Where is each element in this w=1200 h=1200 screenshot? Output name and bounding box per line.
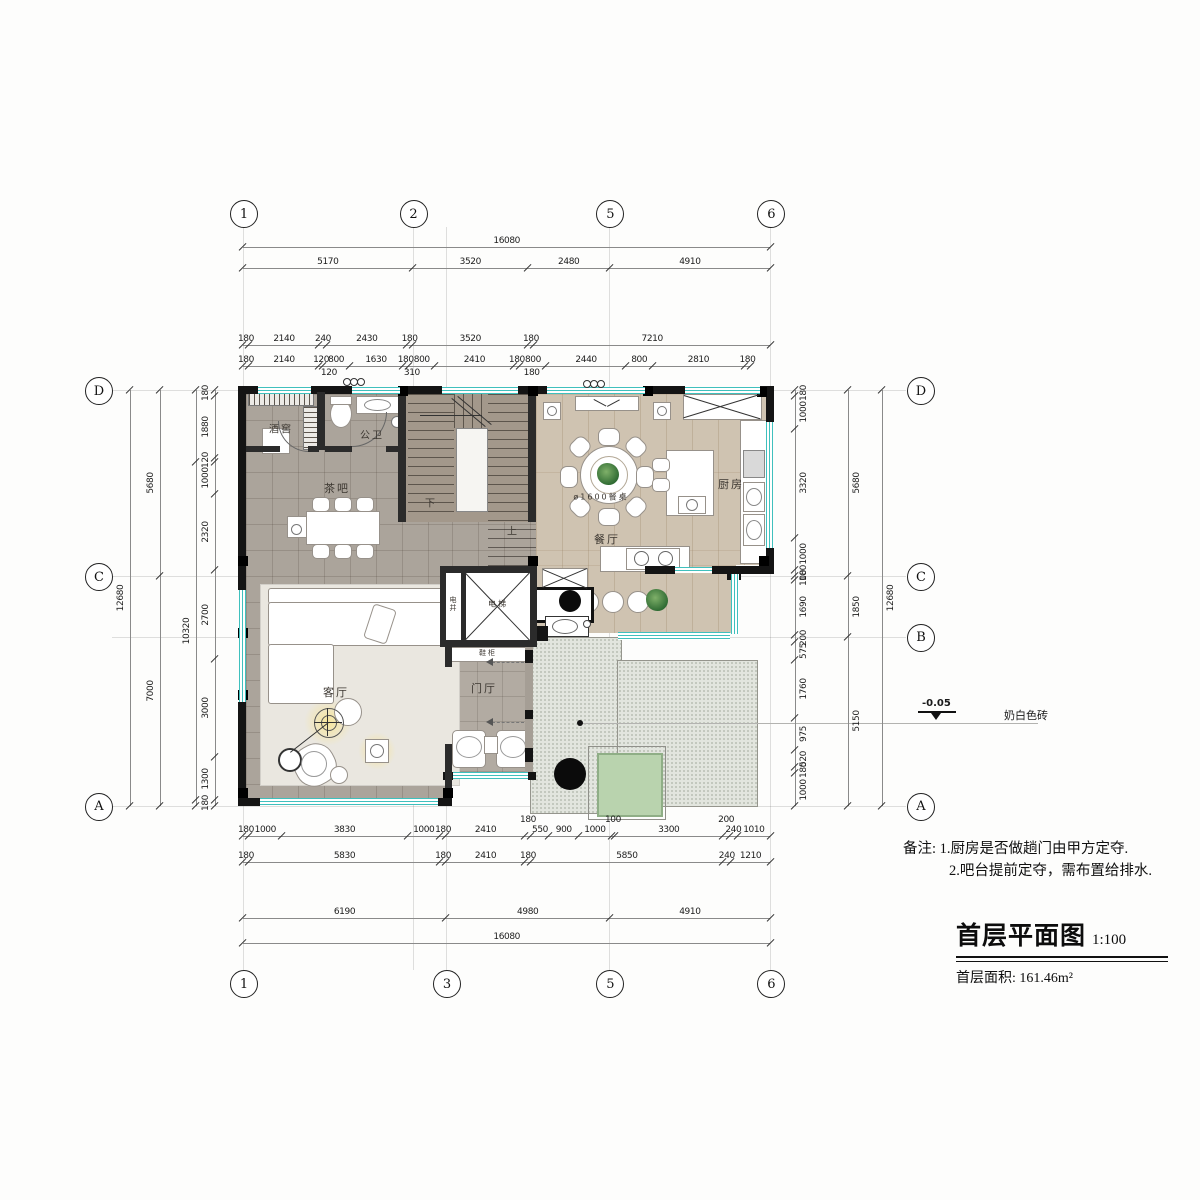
sofa-seat — [268, 602, 452, 646]
window-living-west — [239, 590, 246, 702]
recliner-cushion — [301, 751, 327, 777]
dim-label: 180 — [799, 385, 809, 401]
window — [685, 387, 760, 394]
dim-label: 180 — [488, 815, 568, 825]
wall-light — [547, 406, 557, 416]
dim-label: 180 — [707, 355, 787, 365]
burner — [658, 551, 673, 566]
room-label-stair-up: 上 — [507, 523, 519, 538]
wall-int — [246, 446, 280, 452]
dim-label: 5170 — [288, 257, 368, 267]
terrace-planter — [554, 758, 586, 790]
dim-label: 6190 — [305, 907, 385, 917]
dim-line-left-fine — [215, 390, 216, 806]
title-rule — [956, 956, 1168, 962]
room-label-kitchen: 厨房 — [718, 476, 744, 492]
chair — [334, 544, 352, 559]
grid-bubble-5: 5 — [596, 970, 624, 998]
dim-line-right-fine — [795, 390, 796, 806]
foyer-side-table — [484, 736, 498, 754]
dim-label: 1210 — [711, 851, 791, 861]
dim-label: 1000 — [799, 543, 809, 564]
floor-plan-sheet: -0.05 奶白色砖 备注: 1.厨房是否做趟门由甲方定夺. 2.吧台提前定夺，… — [0, 0, 1200, 1200]
notes-block: 备注: 1.厨房是否做趟门由甲方定夺. 2.吧台提前定夺，需布置给排水. — [903, 838, 1200, 882]
wall-int — [528, 392, 536, 522]
grid-bubble-C: C — [907, 563, 935, 591]
dim-line-left-mid — [196, 390, 197, 806]
dim-label: 1690 — [799, 597, 809, 618]
chair — [598, 508, 620, 526]
dim-label: 200 — [686, 815, 766, 825]
grid-bubble-C: C — [85, 563, 113, 591]
dim-label: 180 — [201, 385, 211, 401]
dim-label: 4910 — [650, 257, 730, 267]
dim-line-bot-major — [243, 918, 770, 919]
room-label-living: 客厅 — [323, 684, 349, 700]
vent-symbol — [597, 380, 605, 388]
notes-label: 备注: — [903, 841, 940, 857]
window — [258, 387, 311, 394]
wall — [712, 566, 774, 574]
chair — [312, 497, 330, 512]
bath-basin — [364, 399, 391, 411]
column — [238, 788, 248, 798]
dim-label: 1000 — [799, 402, 809, 423]
dim-label: 12680 — [886, 585, 896, 612]
grid-bubble-D: D — [85, 377, 113, 405]
dim-line-right-major — [848, 390, 849, 806]
dim-label: 1010 — [714, 825, 794, 835]
window — [442, 387, 518, 394]
dim-label: 7210 — [612, 334, 692, 344]
floor-area: 首层面积: 161.46m² — [956, 967, 1168, 987]
chair — [334, 497, 352, 512]
door-slide-mark — [492, 662, 524, 663]
dim-line-bot-mid — [243, 862, 770, 863]
chair — [312, 544, 330, 559]
ceiling-fan-hub — [321, 715, 337, 731]
toilet-tank — [330, 396, 352, 405]
green-pad — [597, 753, 663, 817]
door-slide-mark — [492, 722, 524, 723]
grid-bubble-3: 3 — [433, 970, 461, 998]
burner — [634, 551, 649, 566]
column — [528, 556, 538, 566]
sink-bowl — [746, 520, 762, 540]
dim-label: 120 — [289, 368, 369, 378]
wall-int — [317, 392, 325, 450]
ottoman — [330, 766, 348, 784]
dim-label: 5830 — [305, 851, 385, 861]
dim-label: 4910 — [650, 907, 730, 917]
column — [528, 386, 538, 396]
window — [675, 567, 712, 573]
grid-bubble-5: 5 — [596, 200, 624, 228]
wall — [766, 386, 774, 422]
dim-label: 180 — [799, 762, 809, 778]
wall — [438, 798, 452, 806]
stair-flight-top — [454, 394, 488, 428]
dim-line-top-mid — [243, 345, 770, 346]
room-label-shoe-cabinet: 鞋柜 — [479, 648, 497, 658]
wall-int — [398, 392, 406, 522]
dim-label: 1850 — [852, 596, 862, 617]
dim-label: 5680 — [146, 472, 156, 493]
wall — [645, 566, 675, 574]
grid-line-h — [112, 806, 906, 807]
dim-label: 16080 — [467, 236, 547, 246]
wall-pier — [525, 748, 533, 762]
grid-bubble-6: 6 — [757, 970, 785, 998]
dim-label: 2320 — [201, 522, 211, 543]
window-living-south — [260, 798, 438, 805]
dim-label: 3830 — [305, 825, 385, 835]
dim-line-top-total — [243, 247, 770, 248]
vent-symbol — [357, 378, 365, 386]
dim-label: 1300 — [201, 768, 211, 789]
dim-label: 2700 — [201, 604, 211, 625]
column — [443, 788, 453, 798]
dim-label: 10320 — [182, 617, 192, 644]
chair — [356, 497, 374, 512]
dim-label: 1760 — [799, 679, 809, 700]
leader-line — [580, 723, 1038, 724]
room-label-dining: 餐厅 — [594, 531, 620, 547]
window-kitchen-bay — [766, 422, 773, 548]
dim-label: 2480 — [529, 257, 609, 267]
window-foyer-south — [453, 772, 528, 779]
grid-bubble-B: B — [907, 624, 935, 652]
chair — [560, 466, 578, 488]
finish-label: 奶白色砖 — [1004, 707, 1048, 723]
powder-knob — [583, 620, 591, 628]
elevator-wall — [530, 566, 537, 647]
dim-label: 12680 — [116, 585, 126, 612]
note-line: 备注: 1.厨房是否做趟门由甲方定夺. — [903, 838, 1200, 860]
window-dining-bay — [731, 574, 739, 634]
plant — [597, 463, 619, 485]
wall — [528, 772, 536, 780]
door-arrow-icon — [486, 658, 493, 666]
dim-label: 100 — [799, 570, 809, 586]
elevator-wall — [440, 566, 536, 573]
foyer-chair-seat — [500, 736, 526, 758]
grid-bubble-2: 2 — [400, 200, 428, 228]
drawing-title: 首层平面图 — [956, 923, 1086, 950]
room-label-foyer: 门厅 — [471, 680, 497, 696]
column — [759, 556, 769, 566]
wall-light — [657, 406, 667, 416]
grid-bubble-A: A — [85, 793, 113, 821]
dim-label: 180 — [491, 334, 571, 344]
dim-label: 3520 — [430, 257, 510, 267]
powder-basin — [559, 590, 581, 612]
range-hood — [575, 396, 639, 411]
wall-int — [386, 446, 400, 452]
dim-label: 5150 — [852, 711, 862, 732]
chair — [598, 428, 620, 446]
powder-oval — [552, 619, 578, 634]
tea-table — [306, 511, 380, 545]
dim-line-top-major — [243, 268, 770, 269]
window — [352, 387, 400, 394]
room-label-stair-down: 下 — [425, 495, 437, 510]
dim-label: 1000 — [225, 825, 305, 835]
grid-bubble-D: D — [907, 377, 935, 405]
wall-bay-pier — [536, 626, 548, 641]
dim-label: 575 — [799, 643, 809, 659]
grid-bubble-1: 1 — [230, 200, 258, 228]
bar-stool — [602, 591, 624, 613]
wall — [238, 798, 260, 806]
door-arrow-icon — [486, 718, 493, 726]
plant — [646, 589, 668, 611]
dim-line-left-major — [160, 390, 161, 806]
stair-void — [456, 428, 488, 512]
dim-label: 100 — [573, 815, 653, 825]
room-label-elevator: 电梯 — [488, 599, 508, 610]
wall-int — [325, 446, 352, 452]
dim-label: 180 — [206, 851, 286, 861]
dim-label: 1000 — [799, 779, 809, 800]
drawing-scale: 1:100 — [1092, 932, 1126, 948]
wall-pier — [525, 710, 533, 719]
dim-label: 180 — [488, 851, 568, 861]
note-line: 2.吧台提前定夺，需布置给排水. — [903, 860, 1200, 882]
dim-label: 4980 — [488, 907, 568, 917]
title-block: 首层平面图1:100 首层面积: 161.46m² — [956, 916, 1168, 987]
level-value: -0.05 — [922, 698, 951, 709]
dim-label: 975 — [799, 726, 809, 742]
tea-cart-wheel — [291, 524, 302, 535]
grid-bubble-1: 1 — [230, 970, 258, 998]
dim-label: 7000 — [146, 680, 156, 701]
stair-direction-line — [420, 415, 482, 416]
dim-line-bot-total — [243, 943, 770, 944]
room-label-dining-table: ø1600餐桌 — [573, 492, 628, 503]
dim-label: 120 — [201, 452, 211, 468]
dim-label: 3320 — [799, 472, 809, 493]
wine-shelf — [248, 393, 314, 406]
chair — [356, 544, 374, 559]
grid-bubble-A: A — [907, 793, 935, 821]
dim-label: 1000 — [555, 825, 635, 835]
grid-bubble-6: 6 — [757, 200, 785, 228]
fridge — [743, 450, 765, 478]
foyer-chair-seat — [456, 736, 482, 758]
room-label-tea-bar: 茶吧 — [324, 480, 350, 496]
dim-label: 3000 — [201, 698, 211, 719]
note-text: 2.吧台提前定夺，需布置给排水. — [949, 863, 1152, 879]
dim-line-bot-fine — [243, 836, 770, 837]
leader-dot — [577, 720, 583, 726]
dim-label: 5680 — [852, 472, 862, 493]
dim-label: 1000 — [201, 467, 211, 488]
level-triangle-icon — [931, 713, 941, 720]
sink-bowl — [746, 488, 762, 506]
window — [547, 387, 645, 394]
dim-label: 16080 — [467, 932, 547, 942]
note-text: 1.厨房是否做趟门由甲方定夺. — [940, 841, 1129, 857]
window-dining-bay — [618, 632, 730, 640]
room-label-bathroom: 公卫 — [360, 427, 384, 442]
side-table-lamp — [370, 744, 384, 758]
island-stove-dial — [686, 499, 698, 511]
dim-label: 5850 — [587, 851, 667, 861]
dim-label: 180 — [201, 795, 211, 811]
wall-pier — [525, 650, 533, 663]
room-label-wine-cellar: 酒窖 — [269, 421, 293, 436]
chair — [652, 478, 670, 492]
dim-line-left-total — [130, 390, 131, 806]
wall-int — [308, 446, 319, 452]
elevator-wall — [440, 640, 536, 647]
room-label-shaft: 电井 — [448, 596, 458, 612]
dim-label: 1880 — [201, 416, 211, 437]
dim-line-right-total — [882, 390, 883, 806]
column — [238, 556, 248, 566]
dim-label: 310 — [372, 368, 452, 378]
dim-label: 180 — [492, 368, 572, 378]
wall-pier — [445, 647, 452, 667]
chair — [652, 458, 670, 472]
